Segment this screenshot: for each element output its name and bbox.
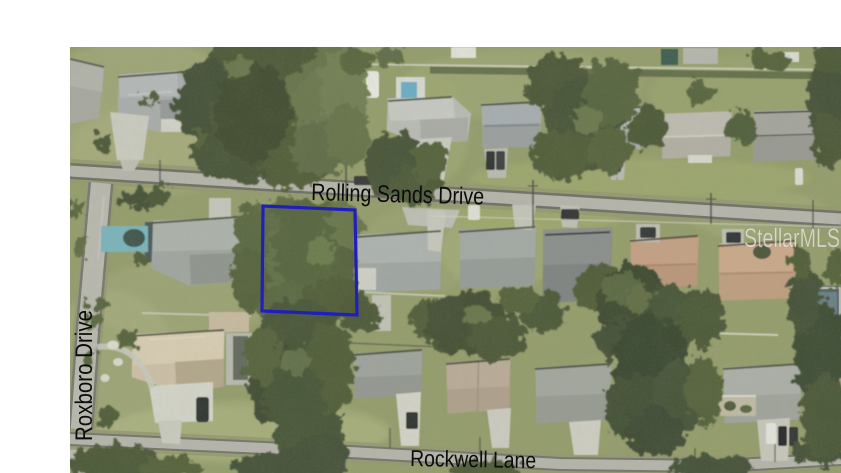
svg-text:Rolling Sands Drive: Rolling Sands Drive bbox=[311, 179, 485, 211]
svg-text:Rockwell Lane: Rockwell Lane bbox=[410, 445, 536, 473]
svg-text:StellarMLS: StellarMLS bbox=[744, 223, 840, 253]
svg-text:Roxboro Drive: Roxboro Drive bbox=[71, 310, 98, 441]
